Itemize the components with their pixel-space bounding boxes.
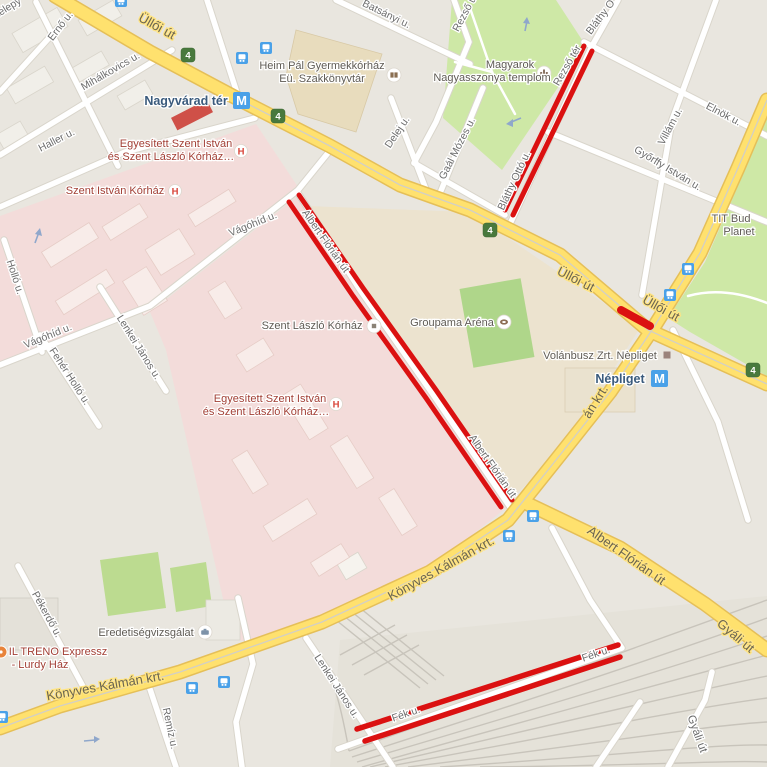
map-canvas[interactable]: 4 4 4 4 M M H H H Üllői út Üllői út Üllő…: [0, 0, 767, 767]
stadium-icon: [497, 315, 511, 329]
poi-label-magyarok-1: Magyarok: [486, 59, 535, 71]
station-label-nepliget: Népliget: [595, 372, 645, 386]
hospital-dot-icon: [367, 319, 381, 333]
tram-stop-icon: [664, 289, 676, 301]
svg-text:4: 4: [185, 51, 191, 62]
svg-text:H: H: [172, 187, 179, 198]
route-badge-4: 4: [181, 48, 195, 62]
poi-label-heim-pal-1: Heim Pál Gyermekkórház: [259, 60, 384, 72]
svg-text:4: 4: [275, 112, 281, 123]
briefcase-icon: [198, 625, 212, 639]
hospital-h-badge: H: [235, 145, 248, 158]
poi-label-egyesitett-1a: Egyesített Szent István: [120, 138, 233, 150]
poi-label-egyesitett-1b: és Szent László Kórház…: [108, 151, 235, 163]
poi-label-tit-2: Planet: [723, 226, 754, 238]
tram-stop-icon: [186, 682, 198, 694]
poi-label-heim-pal-2: Eü. Szakkönyvtár: [279, 73, 365, 85]
poi-label-iltreno-1: IL TRENO Expressz: [9, 646, 107, 658]
svg-text:H: H: [238, 147, 245, 158]
route-badge-4: 4: [746, 363, 760, 377]
poi-label-magyarok-2: Nagyasszonya templom: [433, 72, 550, 84]
tram-stop-icon: [236, 52, 248, 64]
svg-text:M: M: [236, 93, 247, 108]
poi-label-eredetisegvizsgalat: Eredetiségvizsgálat: [98, 627, 193, 639]
poi-label-szent-istvan-korhaz: Szent István Kórház: [66, 185, 164, 197]
tram-stop-icon: [115, 0, 127, 7]
poi-label-groupama-arena: Groupama Aréna: [410, 317, 495, 329]
metro-badge-nepliget: M: [651, 370, 668, 387]
tram-stop-icon: [503, 530, 515, 542]
hospital-h-badge: H: [330, 398, 343, 411]
volanbusz-marker: [664, 352, 671, 359]
sports-field-1: [100, 552, 166, 616]
restaurant-icon: [0, 646, 7, 658]
poi-label-tit-1: TIT Bud: [712, 213, 751, 225]
tram-stop-icon: [260, 42, 272, 54]
station-label-nagyvarad-ter: Nagyvárad tér: [144, 94, 228, 108]
poi-label-volanbusz: Volánbusz Zrt. Nèpliget: [543, 350, 657, 362]
route-badge-4: 4: [271, 109, 285, 123]
svg-text:4: 4: [487, 226, 493, 237]
tram-stop-icon: [527, 510, 539, 522]
svg-text:H: H: [333, 400, 340, 411]
tram-stop-icon: [682, 263, 694, 275]
poi-label-egyesitett-2a: Egyesített Szent István: [214, 393, 327, 405]
poi-label-szent-laszlo-korhaz: Szent László Kórház: [262, 320, 363, 332]
library-icon: [387, 68, 401, 82]
hospital-h-badge: H: [169, 185, 182, 198]
poi-label-egyesitett-2b: és Szent László Kórház…: [203, 406, 330, 418]
svg-text:4: 4: [750, 366, 756, 377]
metro-badge-nagyvarad-ter: M: [233, 92, 250, 109]
tram-stop-icon: [218, 676, 230, 688]
tram-stop-icon: [0, 711, 8, 723]
route-badge-4: 4: [483, 223, 497, 237]
svg-text:M: M: [654, 371, 665, 386]
map-svg: 4 4 4 4 M M H H H Üllői út Üllői út Üllő…: [0, 0, 767, 767]
poi-label-iltreno-2: - Lurdy Ház: [12, 659, 69, 671]
